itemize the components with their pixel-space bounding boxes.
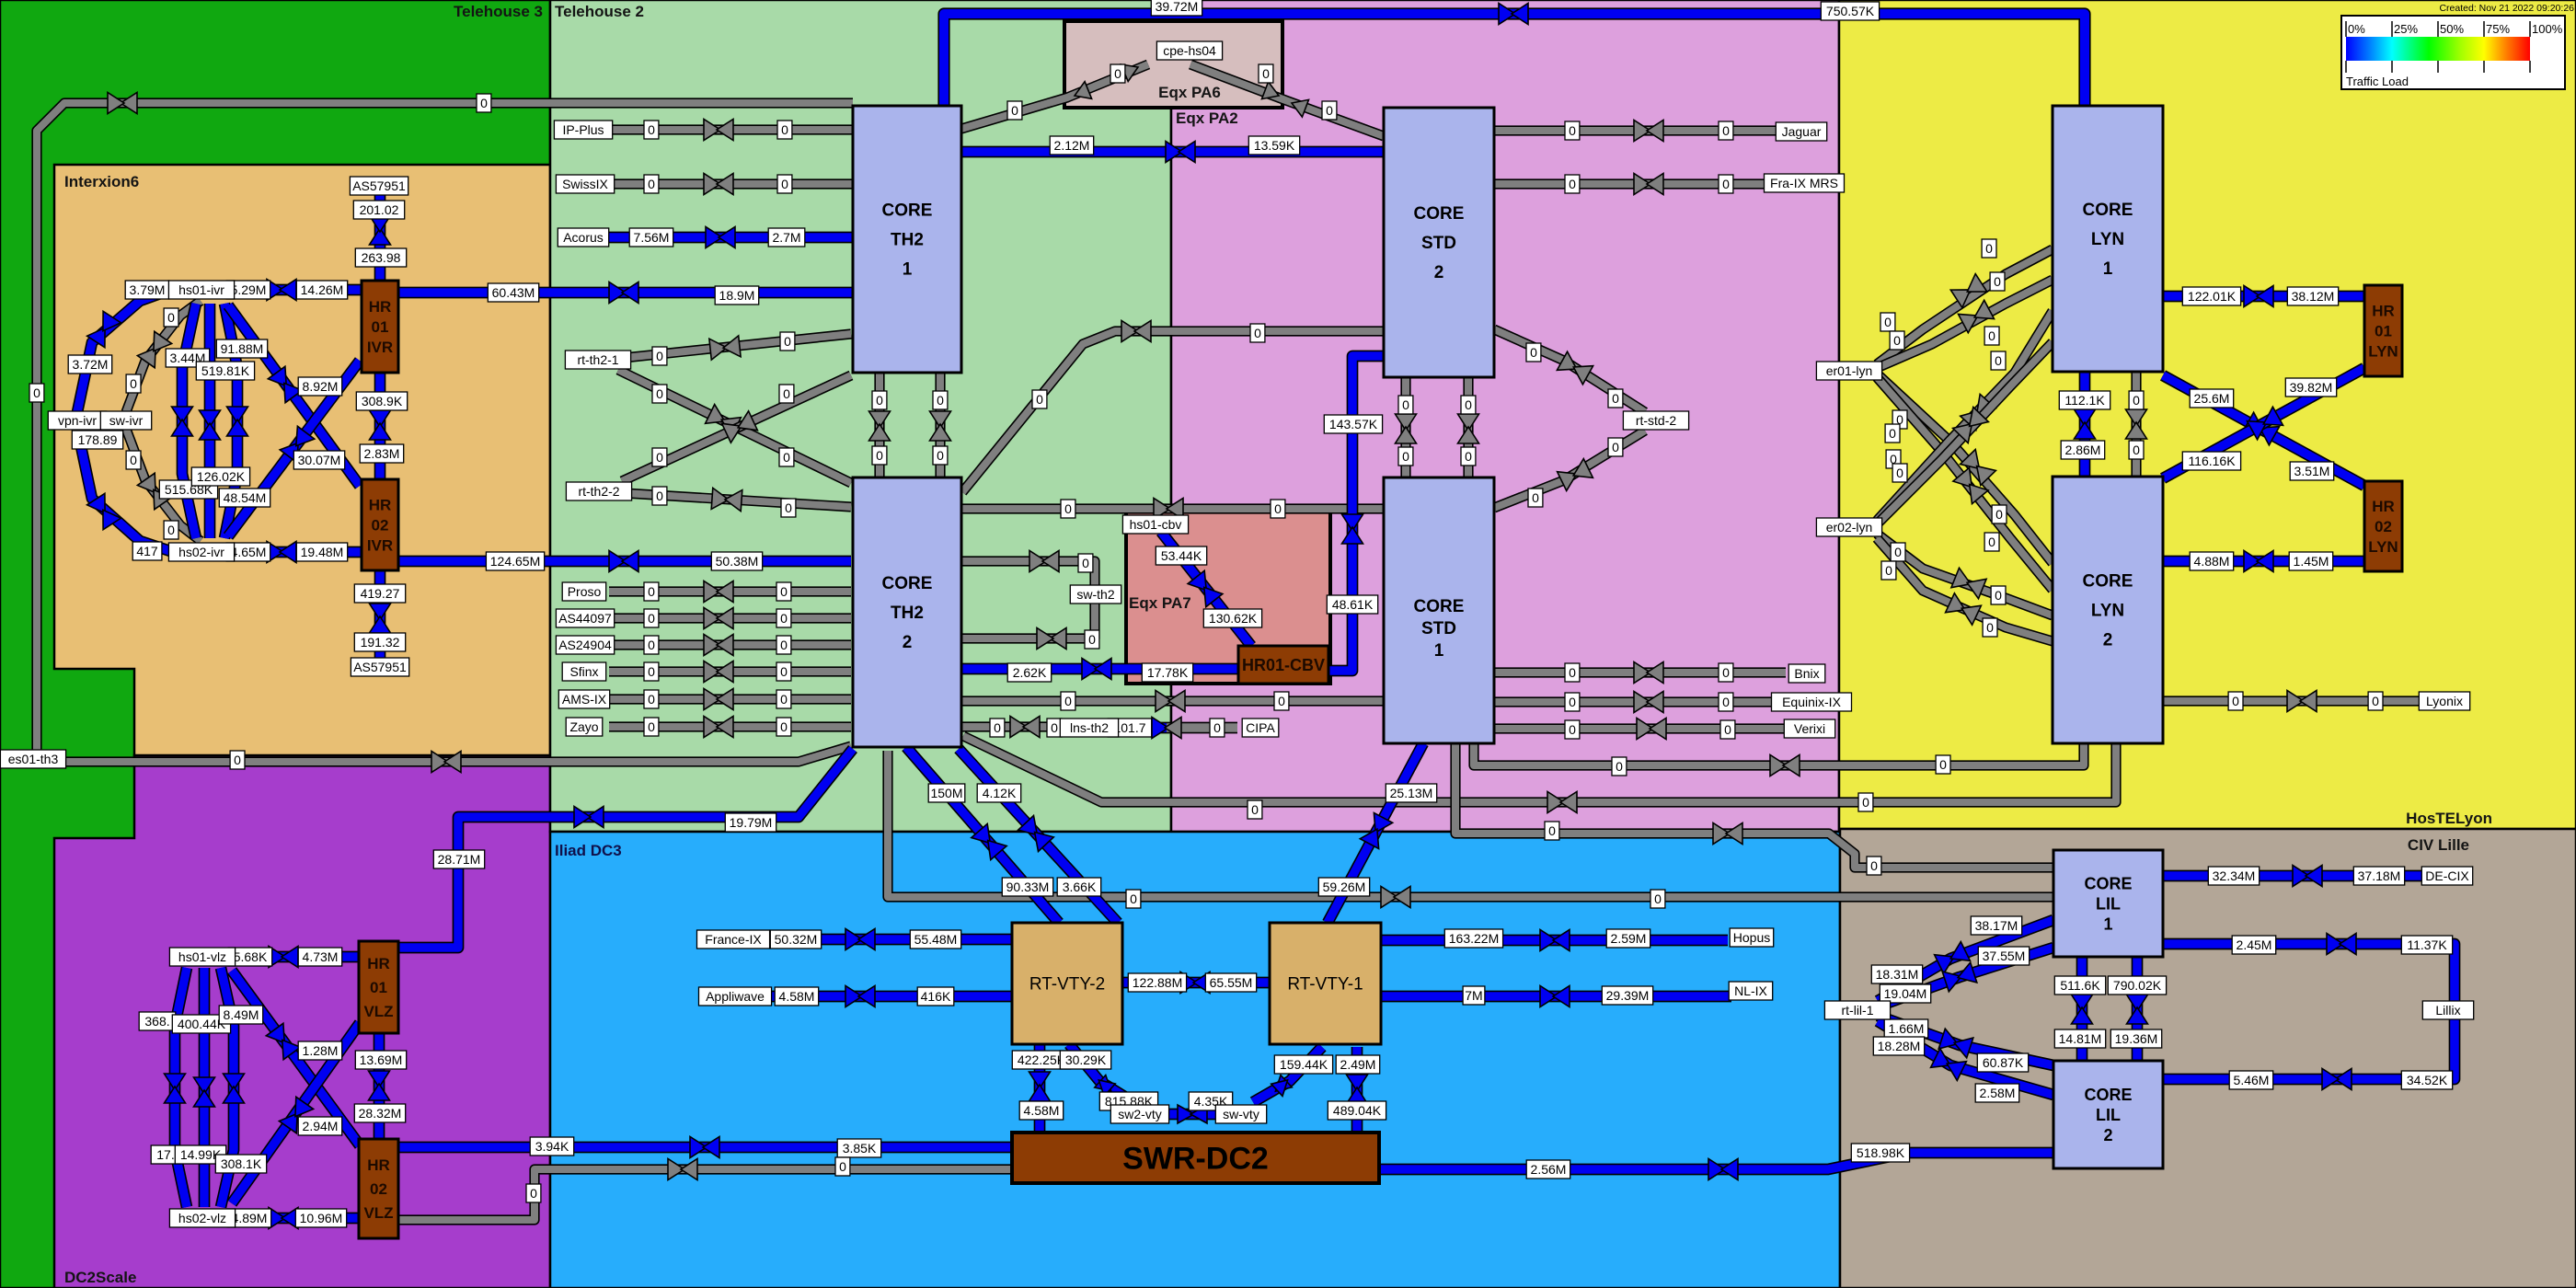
svg-text:1.45M: 1.45M — [2294, 554, 2329, 569]
svg-text:sw-ivr: sw-ivr — [109, 413, 144, 428]
svg-text:hs01-ivr: hs01-ivr — [178, 282, 224, 297]
svg-text:LYN: LYN — [2091, 602, 2124, 621]
svg-text:AS44097: AS44097 — [558, 611, 612, 626]
svg-text:0: 0 — [1130, 891, 1137, 906]
svg-text:02: 02 — [372, 517, 389, 535]
svg-text:Interxion6: Interxion6 — [64, 173, 139, 190]
svg-text:0: 0 — [656, 349, 663, 363]
svg-text:SWR-DC2: SWR-DC2 — [1122, 1141, 1269, 1176]
svg-text:3.85K: 3.85K — [843, 1141, 877, 1156]
svg-text:0: 0 — [1722, 177, 1730, 191]
svg-text:2: 2 — [1434, 263, 1444, 282]
svg-text:7.56M: 7.56M — [634, 230, 670, 245]
svg-text:1.66M: 1.66M — [1889, 1021, 1925, 1036]
svg-text:3.79M: 3.79M — [130, 282, 166, 297]
svg-text:0: 0 — [1326, 103, 1333, 118]
svg-text:02: 02 — [370, 1180, 387, 1198]
svg-text:Jaguar: Jaguar — [1782, 124, 1822, 139]
svg-text:4.12K: 4.12K — [983, 786, 1017, 800]
svg-text:0: 0 — [648, 177, 655, 191]
svg-text:0: 0 — [1995, 588, 2002, 603]
svg-text:2: 2 — [903, 633, 913, 652]
svg-text:0: 0 — [648, 692, 655, 707]
svg-text:er02-lyn: er02-lyn — [1826, 520, 1873, 535]
svg-text:518.98K: 518.98K — [1857, 1145, 1905, 1160]
svg-text:511.6K: 511.6K — [2060, 978, 2100, 993]
svg-text:0: 0 — [1616, 759, 1623, 774]
svg-text:0: 0 — [1986, 620, 1994, 635]
svg-text:159.44K: 159.44K — [1280, 1057, 1328, 1072]
svg-text:LIL: LIL — [2096, 894, 2121, 913]
svg-text:0: 0 — [1402, 397, 1409, 412]
svg-text:0: 0 — [781, 122, 788, 137]
svg-text:0: 0 — [1724, 722, 1731, 737]
svg-text:30.29K: 30.29K — [1065, 1052, 1107, 1067]
svg-text:CORE: CORE — [2084, 874, 2132, 892]
svg-text:0: 0 — [2133, 393, 2140, 408]
svg-text:0: 0 — [656, 386, 663, 401]
svg-text:hs02-vlz: hs02-vlz — [178, 1211, 226, 1225]
svg-text:29.39M: 29.39M — [1606, 988, 1650, 1003]
svg-text:RT-VTY-1: RT-VTY-1 — [1287, 975, 1363, 995]
svg-text:17.: 17. — [156, 1147, 174, 1162]
svg-text:10.96M: 10.96M — [300, 1211, 343, 1225]
svg-text:0: 0 — [1082, 556, 1089, 570]
svg-text:01: 01 — [372, 318, 389, 336]
svg-text:178.89: 178.89 — [78, 432, 118, 447]
svg-text:368.: 368. — [144, 1014, 169, 1029]
svg-text:0: 0 — [1722, 665, 1730, 680]
svg-text:0: 0 — [656, 450, 663, 465]
svg-text:4.88M: 4.88M — [2194, 554, 2230, 569]
svg-text:38.17M: 38.17M — [1975, 918, 2018, 933]
svg-text:39.82M: 39.82M — [2290, 380, 2333, 395]
svg-text:LYN: LYN — [2368, 538, 2398, 556]
svg-text:5.68K: 5.68K — [234, 949, 268, 964]
svg-text:HR: HR — [369, 298, 392, 316]
svg-text:489.04K: 489.04K — [1333, 1103, 1382, 1118]
svg-text:30.07M: 30.07M — [298, 453, 341, 467]
svg-text:0: 0 — [2133, 443, 2140, 457]
svg-text:CORE: CORE — [1414, 204, 1465, 224]
svg-text:rt-th2-1: rt-th2-1 — [577, 352, 618, 367]
svg-text:417: 417 — [136, 544, 158, 558]
svg-text:19.04M: 19.04M — [1884, 986, 1927, 1001]
svg-text:Verixi: Verixi — [1794, 721, 1825, 736]
svg-text:CORE: CORE — [2083, 201, 2133, 220]
svg-text:17.78K: 17.78K — [1147, 665, 1189, 680]
svg-text:28.71M: 28.71M — [438, 852, 481, 867]
svg-text:Appliwave: Appliwave — [706, 989, 765, 1004]
svg-text:0: 0 — [1254, 326, 1261, 340]
svg-text:8.49M: 8.49M — [224, 1007, 259, 1022]
svg-text:0: 0 — [1896, 466, 1903, 480]
svg-text:0: 0 — [1995, 507, 2003, 522]
svg-text:419.27: 419.27 — [361, 586, 400, 601]
svg-text:0: 0 — [1548, 823, 1556, 838]
svg-text:0: 0 — [656, 489, 663, 503]
svg-text:0: 0 — [167, 523, 175, 537]
svg-text:HR01-CBV: HR01-CBV — [1242, 656, 1325, 674]
svg-text:STD: STD — [1421, 619, 1456, 638]
svg-text:2.86M: 2.86M — [2065, 443, 2101, 457]
svg-text:Eqx PA6: Eqx PA6 — [1158, 84, 1221, 101]
svg-text:59.26M: 59.26M — [1323, 880, 1366, 894]
svg-text:28.32M: 28.32M — [359, 1106, 402, 1121]
svg-text:4.58M: 4.58M — [779, 989, 815, 1004]
svg-text:CORE: CORE — [2084, 1086, 2132, 1104]
svg-text:DC2Scale: DC2Scale — [64, 1269, 136, 1286]
svg-text:50.38M: 50.38M — [716, 554, 759, 569]
svg-text:0: 0 — [783, 450, 790, 465]
svg-text:3.51M: 3.51M — [2294, 464, 2330, 478]
svg-text:0: 0 — [1064, 694, 1072, 708]
svg-text:Sfinx: Sfinx — [569, 664, 598, 679]
svg-text:4.65M: 4.65M — [231, 545, 267, 559]
svg-text:CORE: CORE — [1414, 597, 1465, 616]
svg-text:39.72M: 39.72M — [1156, 0, 1199, 14]
svg-text:18.9M: 18.9M — [719, 288, 755, 303]
svg-text:5.29M: 5.29M — [231, 282, 267, 297]
svg-text:18.31M: 18.31M — [1876, 967, 1919, 982]
svg-text:Iliad DC3: Iliad DC3 — [555, 842, 622, 859]
svg-text:416K: 416K — [921, 989, 951, 1004]
svg-text:0: 0 — [648, 611, 655, 626]
svg-text:0: 0 — [1612, 391, 1619, 406]
svg-text:hs01-cbv: hs01-cbv — [1130, 517, 1182, 532]
svg-text:SwissIX: SwissIX — [562, 177, 608, 191]
svg-text:IVR: IVR — [367, 339, 393, 356]
svg-text:Telehouse 2: Telehouse 2 — [555, 3, 644, 20]
svg-text:AS24904: AS24904 — [558, 638, 612, 652]
svg-text:19.48M: 19.48M — [301, 545, 344, 559]
svg-text:0: 0 — [648, 664, 655, 679]
svg-text:55.48M: 55.48M — [914, 932, 958, 947]
svg-text:25.13M: 25.13M — [1390, 786, 1433, 800]
svg-text:0: 0 — [1884, 315, 1892, 329]
svg-text:1.28M: 1.28M — [303, 1043, 339, 1058]
svg-text:2: 2 — [2103, 1126, 2112, 1144]
svg-text:rt-lil-1: rt-lil-1 — [1842, 1003, 1874, 1018]
svg-text:2.49M: 2.49M — [1340, 1057, 1376, 1072]
svg-text:122.01K: 122.01K — [2188, 289, 2237, 304]
svg-text:0: 0 — [1612, 440, 1619, 454]
svg-text:2.83M: 2.83M — [364, 446, 400, 461]
svg-text:2.7M: 2.7M — [772, 230, 800, 245]
svg-text:Hopus: Hopus — [1733, 930, 1770, 945]
svg-text:CORE: CORE — [882, 201, 933, 221]
svg-text:hs01-vlz: hs01-vlz — [178, 949, 226, 964]
svg-text:126.02K: 126.02K — [197, 469, 246, 484]
svg-text:02: 02 — [2375, 518, 2392, 535]
svg-text:0: 0 — [781, 177, 788, 191]
svg-text:308.9K: 308.9K — [362, 394, 403, 408]
svg-text:3.94K: 3.94K — [535, 1139, 569, 1154]
svg-text:13.59K: 13.59K — [1254, 138, 1295, 153]
svg-text:2.62K: 2.62K — [1013, 665, 1047, 680]
svg-text:50.32M: 50.32M — [775, 932, 818, 947]
svg-text:0: 0 — [1569, 722, 1576, 737]
svg-text:0: 0 — [648, 584, 655, 599]
svg-text:50%: 50% — [2440, 22, 2464, 36]
svg-text:0: 0 — [1885, 563, 1892, 578]
svg-text:LIL: LIL — [2096, 1106, 2121, 1124]
svg-text:0: 0 — [784, 334, 791, 349]
svg-text:0: 0 — [839, 1159, 846, 1174]
svg-text:48.54M: 48.54M — [224, 490, 267, 505]
svg-text:0: 0 — [780, 692, 788, 707]
svg-text:4.73M: 4.73M — [303, 949, 339, 964]
svg-text:Acorus: Acorus — [563, 230, 604, 245]
svg-text:NL-IX: NL-IX — [1734, 983, 1767, 998]
svg-text:263.98: 263.98 — [362, 250, 401, 265]
svg-text:0: 0 — [1114, 66, 1121, 81]
svg-text:01: 01 — [370, 979, 387, 996]
svg-text:sw-th2: sw-th2 — [1076, 587, 1114, 602]
svg-text:19.79M: 19.79M — [730, 815, 773, 830]
svg-text:0: 0 — [1569, 123, 1576, 138]
svg-text:01: 01 — [2375, 322, 2392, 339]
svg-text:Zayo: Zayo — [569, 719, 598, 734]
svg-text:0: 0 — [1862, 795, 1869, 810]
svg-text:0: 0 — [1532, 490, 1539, 505]
svg-text:11.37K: 11.37K — [2407, 937, 2447, 952]
svg-text:Lyonix: Lyonix — [2426, 694, 2463, 708]
svg-text:rt-th2-2: rt-th2-2 — [578, 484, 619, 499]
svg-text:IVR: IVR — [367, 537, 393, 555]
svg-text:Traffic Load: Traffic Load — [2346, 75, 2409, 88]
svg-text:Equinix-IX: Equinix-IX — [1782, 695, 1841, 709]
svg-text:0: 0 — [1889, 426, 1896, 441]
svg-text:422.25K: 422.25K — [1018, 1052, 1066, 1067]
svg-text:0: 0 — [994, 720, 1001, 735]
svg-text:2.94M: 2.94M — [303, 1119, 339, 1133]
svg-text:37.18M: 37.18M — [2358, 868, 2401, 883]
svg-text:0: 0 — [2232, 694, 2239, 708]
svg-text:116.16K: 116.16K — [2188, 454, 2236, 468]
svg-text:2.12M: 2.12M — [1054, 138, 1090, 153]
svg-text:60.87K: 60.87K — [1983, 1055, 2024, 1070]
svg-text:Lillix: Lillix — [2435, 1003, 2460, 1018]
svg-text:0: 0 — [480, 96, 488, 110]
svg-text:HosTELyon: HosTELyon — [2406, 810, 2492, 827]
svg-text:VLZ: VLZ — [363, 1003, 393, 1020]
svg-text:Eqx PA7: Eqx PA7 — [1129, 594, 1191, 612]
svg-text:25.6M: 25.6M — [2194, 391, 2230, 406]
svg-text:Bnix: Bnix — [1794, 666, 1819, 681]
svg-text:HR: HR — [367, 1156, 390, 1174]
svg-text:0: 0 — [1251, 802, 1259, 817]
svg-text:75%: 75% — [2486, 22, 2510, 36]
svg-text:0: 0 — [1402, 449, 1409, 464]
svg-text:cpe-hs04: cpe-hs04 — [1163, 43, 1216, 58]
svg-text:0: 0 — [780, 719, 788, 734]
svg-text:0: 0 — [1988, 535, 1995, 549]
svg-text:vpn-ivr: vpn-ivr — [58, 413, 97, 428]
svg-text:201.02: 201.02 — [360, 202, 399, 217]
svg-text:0: 0 — [1262, 66, 1270, 81]
svg-text:0: 0 — [937, 393, 944, 408]
svg-text:AS57951: AS57951 — [352, 178, 406, 193]
svg-text:STD: STD — [1421, 234, 1456, 253]
svg-text:7M: 7M — [1465, 988, 1482, 1003]
svg-text:90.33M: 90.33M — [1006, 880, 1050, 894]
svg-text:AMS-IX: AMS-IX — [562, 692, 607, 707]
svg-text:HR: HR — [2372, 498, 2395, 515]
svg-text:TH2: TH2 — [891, 604, 924, 623]
svg-text:0: 0 — [1213, 720, 1221, 735]
svg-text:0: 0 — [783, 386, 790, 401]
svg-text:0: 0 — [780, 638, 788, 652]
svg-text:Fra-IX MRS: Fra-IX MRS — [1770, 176, 1838, 190]
svg-text:143.57K: 143.57K — [1329, 417, 1378, 431]
svg-text:CORE: CORE — [882, 574, 933, 593]
svg-text:34.52K: 34.52K — [2407, 1073, 2448, 1087]
svg-text:0: 0 — [1569, 177, 1576, 191]
svg-text:0: 0 — [785, 500, 792, 515]
svg-text:3.66K: 3.66K — [1063, 880, 1097, 894]
svg-text:LYN: LYN — [2368, 342, 2398, 360]
svg-text:0: 0 — [1654, 891, 1662, 906]
svg-text:0: 0 — [1722, 695, 1730, 709]
svg-text:32.34M: 32.34M — [2213, 868, 2256, 883]
svg-text:0: 0 — [1985, 241, 1993, 256]
svg-text:0: 0 — [780, 664, 788, 679]
svg-text:0: 0 — [1569, 695, 1576, 709]
svg-text:CIPA: CIPA — [1246, 720, 1275, 735]
svg-text:rt-std-2: rt-std-2 — [1636, 413, 1677, 428]
svg-text:0: 0 — [1064, 501, 1072, 516]
svg-text:0: 0 — [1893, 333, 1901, 348]
svg-text:0: 0 — [1274, 501, 1282, 516]
svg-text:sw-vty: sw-vty — [1223, 1107, 1259, 1121]
svg-text:0: 0 — [876, 448, 883, 463]
svg-text:19.36M: 19.36M — [2115, 1031, 2158, 1046]
svg-text:Created: Nov 21 2022 09:20:26: Created: Nov 21 2022 09:20:26 — [2439, 3, 2574, 14]
svg-text:0%: 0% — [2348, 22, 2365, 36]
svg-text:Telehouse 3: Telehouse 3 — [454, 3, 543, 20]
svg-text:519.81K: 519.81K — [201, 363, 250, 378]
svg-text:TH2: TH2 — [891, 231, 924, 250]
svg-text:5.46M: 5.46M — [2234, 1073, 2270, 1087]
svg-text:LYN: LYN — [2091, 230, 2124, 249]
svg-text:8.92M: 8.92M — [303, 379, 339, 394]
svg-text:25%: 25% — [2394, 22, 2418, 36]
svg-text:13.69M: 13.69M — [360, 1052, 403, 1067]
svg-text:0: 0 — [1722, 123, 1730, 138]
svg-text:750.57K: 750.57K — [1826, 4, 1875, 18]
svg-text:0: 0 — [130, 453, 137, 467]
svg-text:0: 0 — [780, 584, 788, 599]
svg-text:3.72M: 3.72M — [73, 357, 109, 372]
svg-text:HR: HR — [2372, 302, 2395, 319]
svg-text:0: 0 — [1894, 545, 1902, 559]
svg-text:AS57951: AS57951 — [353, 660, 407, 674]
svg-text:0: 0 — [1569, 665, 1576, 680]
svg-text:308.1K: 308.1K — [221, 1156, 262, 1171]
svg-text:0: 0 — [1530, 345, 1537, 360]
svg-text:790.02K: 790.02K — [2113, 978, 2162, 993]
svg-text:es01-th3: es01-th3 — [8, 752, 59, 766]
svg-text:CORE: CORE — [2083, 572, 2133, 592]
svg-text:18.28M: 18.28M — [1878, 1039, 1921, 1053]
svg-text:1: 1 — [2103, 914, 2112, 933]
svg-text:0: 0 — [33, 385, 40, 400]
svg-text:130.62K: 130.62K — [1209, 611, 1258, 626]
svg-text:0: 0 — [1995, 353, 2002, 368]
svg-text:Eqx PA2: Eqx PA2 — [1176, 109, 1238, 127]
svg-text:France-IX: France-IX — [705, 932, 762, 947]
svg-text:0: 0 — [1088, 632, 1096, 647]
svg-text:53.44K: 53.44K — [1161, 548, 1202, 563]
svg-text:0: 0 — [530, 1186, 537, 1201]
svg-text:0: 0 — [876, 393, 883, 408]
svg-text:HR: HR — [369, 497, 392, 514]
svg-text:hs02-ivr: hs02-ivr — [178, 545, 224, 559]
svg-text:0: 0 — [648, 638, 655, 652]
svg-text:150M: 150M — [930, 786, 962, 800]
svg-text:0: 0 — [1051, 720, 1058, 735]
svg-text:0: 0 — [648, 719, 655, 734]
svg-text:48.61K: 48.61K — [1332, 597, 1374, 612]
svg-text:lns-th2: lns-th2 — [1070, 720, 1109, 735]
svg-text:0: 0 — [234, 753, 241, 767]
svg-text:191.32: 191.32 — [361, 635, 400, 650]
svg-text:2.58M: 2.58M — [1980, 1086, 2016, 1100]
svg-text:4.58M: 4.58M — [1024, 1103, 1060, 1118]
svg-text:0: 0 — [1939, 757, 1947, 772]
svg-text:0: 0 — [1278, 694, 1285, 708]
svg-text:CIV Lille: CIV Lille — [2408, 836, 2469, 854]
svg-text:IP-Plus: IP-Plus — [562, 122, 604, 137]
svg-text:38.12M: 38.12M — [2292, 289, 2335, 304]
svg-text:0: 0 — [1870, 858, 1878, 873]
svg-text:0: 0 — [648, 122, 655, 137]
svg-text:2.59M: 2.59M — [1611, 931, 1647, 946]
svg-text:0: 0 — [1011, 103, 1018, 118]
svg-text:1: 1 — [2103, 259, 2113, 279]
svg-text:112.1K: 112.1K — [2064, 393, 2105, 408]
svg-text:HR: HR — [367, 955, 390, 972]
svg-text:2.45M: 2.45M — [2237, 937, 2272, 952]
svg-text:0: 0 — [2372, 694, 2379, 708]
svg-text:VLZ: VLZ — [363, 1204, 393, 1222]
svg-text:Proso: Proso — [568, 584, 602, 599]
svg-text:124.65M: 124.65M — [490, 554, 540, 569]
svg-text:122.88M: 122.88M — [1133, 975, 1182, 990]
svg-text:1: 1 — [903, 260, 913, 280]
svg-text:0: 0 — [130, 376, 137, 391]
svg-text:1: 1 — [1434, 641, 1444, 661]
svg-text:0: 0 — [937, 448, 944, 463]
svg-text:2.56M: 2.56M — [1531, 1162, 1567, 1177]
svg-text:14.26M: 14.26M — [301, 282, 344, 297]
svg-text:65.55M: 65.55M — [1210, 975, 1253, 990]
svg-text:0: 0 — [167, 310, 175, 325]
svg-text:0: 0 — [1036, 392, 1043, 407]
svg-text:91.88M: 91.88M — [221, 341, 264, 356]
svg-text:0: 0 — [1465, 397, 1472, 412]
svg-text:er01-lyn: er01-lyn — [1826, 363, 1873, 378]
svg-text:0: 0 — [1994, 274, 2001, 289]
svg-text:0: 0 — [1988, 328, 1995, 343]
svg-text:RT-VTY-2: RT-VTY-2 — [1029, 975, 1105, 995]
svg-text:sw2-vty: sw2-vty — [1118, 1107, 1161, 1121]
svg-text:0: 0 — [1465, 449, 1472, 464]
svg-text:60.43M: 60.43M — [492, 285, 535, 300]
svg-text:DE-CIX: DE-CIX — [2425, 868, 2469, 883]
svg-text:163.22M: 163.22M — [1449, 931, 1499, 946]
